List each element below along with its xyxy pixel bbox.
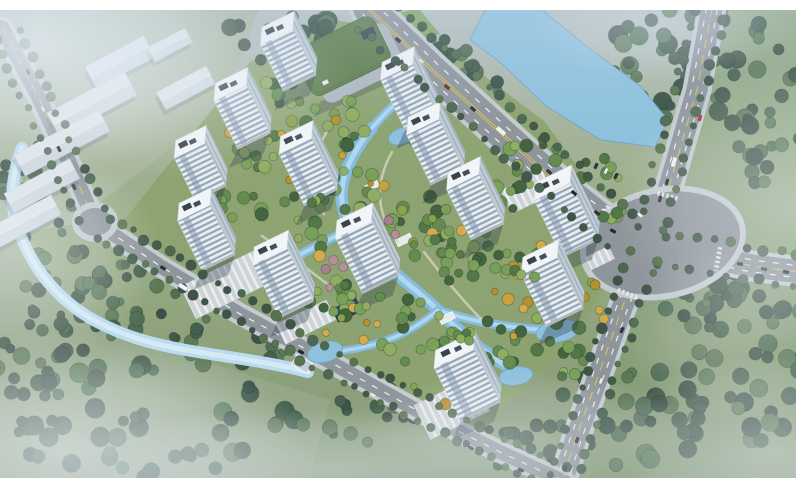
tree [426, 338, 439, 351]
tree [374, 321, 381, 328]
tree [329, 256, 338, 265]
tree [305, 226, 319, 240]
tree [198, 270, 208, 280]
tree [585, 352, 595, 362]
tree [396, 312, 408, 324]
tree [351, 383, 357, 389]
tree [400, 357, 409, 366]
tree [228, 213, 238, 223]
tree [321, 264, 331, 274]
tree [456, 334, 465, 343]
aerial-masterplan-rendering [0, 0, 800, 485]
tree [255, 208, 268, 221]
tree [340, 167, 349, 176]
tree [237, 317, 246, 326]
haze-veil-top [0, 0, 800, 130]
tree [447, 237, 456, 246]
tree [350, 358, 358, 366]
tree [435, 311, 444, 320]
tree [165, 246, 175, 256]
tree [468, 260, 479, 271]
tree [215, 280, 221, 286]
haze-veil-bottom [0, 395, 800, 485]
tree [444, 226, 454, 236]
tree [326, 284, 333, 291]
tree [549, 154, 562, 167]
tree [439, 267, 450, 278]
tree [384, 216, 393, 225]
tree [605, 308, 612, 315]
tree [482, 316, 493, 327]
tree [539, 132, 549, 142]
tree [563, 341, 575, 353]
tree [490, 145, 500, 155]
tree [416, 298, 425, 307]
tree [362, 302, 370, 310]
tree [583, 172, 593, 182]
tree [319, 303, 329, 313]
tree [249, 192, 257, 200]
tree [606, 189, 616, 199]
tree [363, 319, 370, 326]
tree [352, 167, 363, 178]
tree [248, 296, 257, 305]
tree [295, 328, 304, 337]
tree [166, 276, 174, 284]
tree [509, 204, 517, 212]
tree [386, 374, 395, 383]
tree [271, 310, 282, 321]
tree [339, 263, 348, 272]
tree [359, 335, 368, 344]
tree [598, 211, 609, 222]
tree [521, 172, 532, 183]
tree [320, 341, 329, 350]
tree [368, 181, 374, 187]
tree [561, 151, 569, 159]
tree [341, 380, 348, 387]
tree [176, 254, 184, 262]
tree [329, 307, 339, 317]
tree [337, 293, 349, 305]
frame-right [796, 0, 800, 485]
tree [169, 332, 178, 341]
tree [430, 235, 440, 245]
tree [314, 250, 326, 262]
tree [516, 270, 526, 280]
tree [519, 304, 528, 313]
tree [289, 192, 299, 202]
tree [510, 333, 517, 340]
tree [391, 230, 399, 238]
tree [618, 263, 628, 273]
tree [595, 306, 603, 314]
tree [340, 204, 350, 214]
tree [441, 204, 451, 214]
tree [529, 272, 539, 282]
tree [610, 293, 618, 301]
tree [367, 189, 381, 203]
tree [202, 315, 210, 323]
tree [294, 356, 305, 367]
tree [379, 181, 389, 191]
tree [416, 345, 426, 355]
tree [375, 292, 384, 301]
tree [307, 198, 317, 208]
tree [409, 250, 421, 262]
tree [584, 366, 593, 375]
tree [502, 293, 514, 305]
tree [464, 336, 474, 346]
tree [445, 248, 455, 258]
tree [494, 250, 504, 260]
tree [455, 269, 463, 277]
tree [286, 319, 296, 329]
tree [597, 184, 605, 192]
tree [366, 168, 379, 181]
tree [490, 263, 501, 274]
tree [402, 294, 414, 306]
tree [410, 241, 418, 249]
tree [384, 343, 397, 356]
tree [338, 314, 346, 322]
tree [590, 280, 600, 290]
tree [496, 324, 506, 334]
tree [567, 212, 576, 221]
tree [561, 206, 568, 213]
tree [222, 310, 231, 319]
tree [428, 215, 436, 223]
tree [259, 334, 268, 343]
tree [613, 276, 623, 286]
tree [294, 234, 303, 243]
tree [201, 298, 208, 305]
tree [339, 152, 346, 159]
tree [190, 323, 202, 335]
tree [397, 205, 407, 215]
tree [605, 243, 611, 249]
tree [365, 366, 372, 373]
tree [512, 162, 521, 171]
tree [341, 139, 354, 152]
tree [307, 335, 318, 346]
tree [400, 382, 406, 388]
tree [309, 365, 315, 371]
tree [214, 308, 220, 314]
tree [553, 143, 561, 151]
tree [223, 286, 231, 294]
tree [237, 192, 250, 205]
tree [188, 290, 199, 301]
tree [499, 154, 509, 164]
rendering-stage [0, 0, 800, 485]
tree [531, 343, 544, 356]
tree [510, 141, 520, 151]
tree [249, 327, 255, 333]
tree [481, 136, 487, 142]
tree [520, 139, 533, 152]
tree [592, 338, 598, 344]
tree [531, 164, 542, 175]
tree [547, 192, 555, 200]
tree [323, 369, 333, 379]
frame-top [0, 0, 800, 10]
tree [285, 345, 296, 356]
tree [337, 351, 343, 357]
tree [579, 223, 587, 231]
tree [622, 371, 634, 383]
tree [272, 340, 279, 347]
tree [492, 288, 499, 295]
tree [576, 161, 584, 169]
tree [377, 371, 384, 378]
tree [615, 361, 621, 367]
tree [156, 309, 166, 319]
tree [280, 197, 290, 207]
frame-bottom [0, 478, 800, 485]
tree [599, 314, 608, 323]
tree [262, 304, 272, 314]
tree [503, 356, 516, 369]
tree [340, 281, 349, 290]
tree [238, 289, 246, 297]
tree [535, 183, 545, 193]
tree [186, 260, 197, 271]
tree [322, 329, 329, 336]
tree [596, 323, 607, 334]
tree [593, 234, 602, 243]
